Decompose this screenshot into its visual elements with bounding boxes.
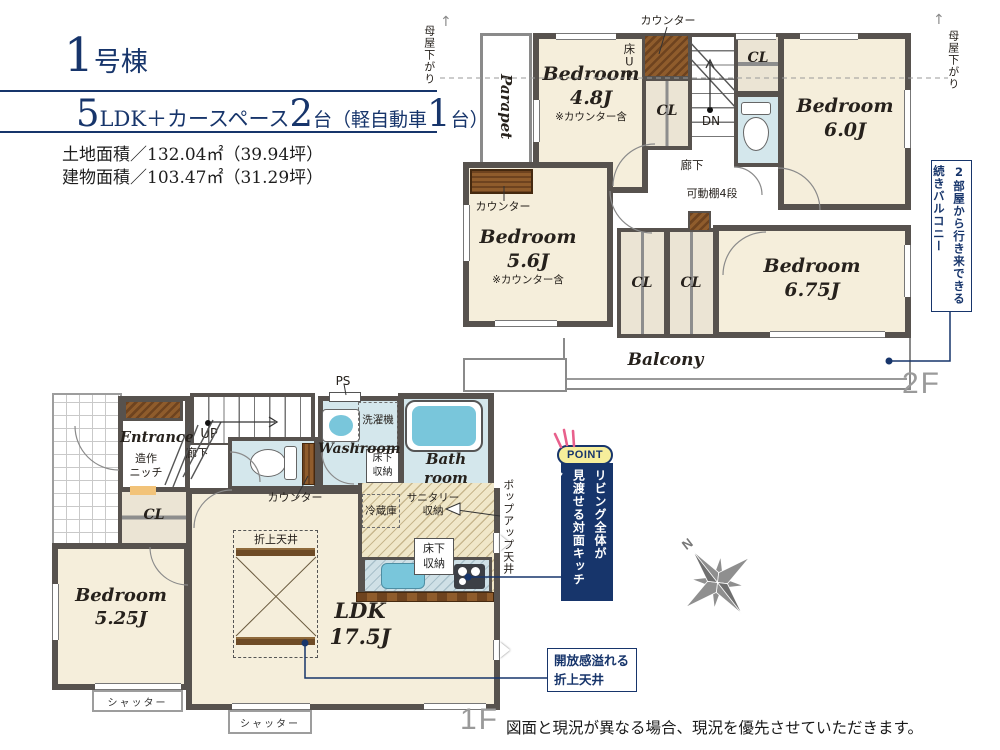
door-opening xyxy=(493,533,500,553)
bedroom-6-0-label: Bedroom 6.0J xyxy=(785,95,905,143)
room-note: ※カウンター含 xyxy=(492,274,564,287)
counter-1f-label: カウンター xyxy=(266,491,324,505)
room-name: Bedroom xyxy=(764,255,861,279)
burner xyxy=(458,567,467,576)
room-size: 5.6J xyxy=(507,250,549,274)
window xyxy=(232,703,310,710)
washroom-label: Washroom xyxy=(318,441,398,459)
land-area: 土地面積／132.04㎡（39.94坪） xyxy=(62,140,323,165)
closet-d-label: CL xyxy=(670,275,712,293)
callout-line: 続きバルコニー xyxy=(929,165,949,307)
niche-line: ニッチ xyxy=(124,466,168,480)
floorplan-page: 1号棟 5LDK＋カースペース2台（軽自動車1台） 土地面積／132.04㎡（3… xyxy=(0,0,1000,750)
door-opening xyxy=(493,640,500,660)
counter-5-6-hatch xyxy=(470,169,533,194)
callout-line: 折上天井 xyxy=(554,671,630,690)
counter-top-label: カウンター xyxy=(638,14,698,28)
washer-label: 洗濯機 xyxy=(359,414,397,427)
burner xyxy=(471,567,480,576)
room-name: Bedroom xyxy=(797,95,894,119)
toilet-tank-1f xyxy=(284,446,297,480)
header-title: 1号棟 xyxy=(64,32,148,79)
hallway-1f-label: 廊下 xyxy=(180,446,214,460)
bathroom-label: Bath room xyxy=(410,450,482,488)
toilet-tank xyxy=(741,102,771,115)
sanitary-line: 収納 xyxy=(400,505,466,518)
popup-ceiling-label: ポップアップ天井 xyxy=(501,477,515,577)
point-badge: POINT xyxy=(557,445,613,465)
shelf-hatch xyxy=(688,211,711,232)
closet-1f-label: CL xyxy=(138,507,170,525)
window xyxy=(904,90,911,148)
door-swing-mark xyxy=(500,642,510,658)
shoe-cabinet-hatch xyxy=(123,399,183,421)
dn-label: DN xyxy=(696,114,726,129)
room-note: ※カウンター含 xyxy=(555,111,627,124)
window xyxy=(52,584,59,640)
shutter-box-1: シャッター xyxy=(92,690,183,712)
ceiling-beam xyxy=(236,548,315,556)
balcony-callout: 2部屋から行き来できる 続きバルコニー xyxy=(931,160,972,312)
building-number: 1 xyxy=(64,28,94,83)
window xyxy=(495,320,557,327)
arrow-up-icon: ↑ xyxy=(440,14,452,30)
kitchen-stove xyxy=(454,564,485,589)
closet-b-label: CL xyxy=(737,50,779,68)
underfloor-line: 床下 xyxy=(415,542,453,557)
building-suffix: 号棟 xyxy=(94,47,148,78)
compass-n-label: N xyxy=(679,535,696,553)
entrance-niche xyxy=(130,486,156,495)
window xyxy=(736,33,776,40)
balcony xyxy=(563,338,911,390)
niche-line: 造作 xyxy=(124,452,168,466)
window xyxy=(556,33,616,40)
kitchen-callout: リビング全体が 見渡せる対面キッチン xyxy=(561,463,613,601)
ps-label: PS xyxy=(329,374,357,389)
entrance-porch xyxy=(52,393,122,560)
toilet-bowl-1f xyxy=(250,449,286,477)
room-size: 6.75J xyxy=(784,279,839,303)
ceiling-beam xyxy=(236,637,315,645)
window xyxy=(800,33,858,40)
ldk-label: LDK 17.5J xyxy=(315,598,405,651)
header-rule-bottom xyxy=(0,131,437,133)
point-badge-text: POINT xyxy=(567,449,603,461)
closet-a-label: CL xyxy=(646,103,688,121)
shelf-label: 可動棚4段 xyxy=(672,187,752,201)
layout-num-2: 2 xyxy=(289,92,313,135)
ps-box xyxy=(329,392,361,402)
washbasin-bowl xyxy=(329,415,353,436)
room-size: 5.25J xyxy=(95,608,147,631)
bedroom-6-75-label: Bedroom 6.75J xyxy=(742,255,882,303)
sanitary-label: サニタリー 収納 xyxy=(400,492,466,518)
room-name: LDK xyxy=(334,598,385,624)
burner xyxy=(459,578,466,585)
room-name: Bedroom xyxy=(480,226,577,250)
balcony-label: Balcony xyxy=(618,350,713,371)
stairs-2f xyxy=(688,33,738,150)
bedroom-5-6-label: Bedroom 5.6J ※カウンター含 xyxy=(467,226,589,287)
underfloor-storage-kitchen: 床下 収納 xyxy=(414,538,454,575)
counter-left-label: カウンター xyxy=(474,200,532,214)
callout-line: 2部屋から行き来できる xyxy=(949,165,969,307)
hallway-2f-label: 廊下 xyxy=(674,158,710,172)
underfloor-line: 収納 xyxy=(367,466,398,480)
dn-dot xyxy=(707,107,713,113)
callout-line: 見渡せる対面キッチン xyxy=(545,469,588,595)
parapet-label: Parapet xyxy=(496,52,515,162)
floor-1f-label: 1F xyxy=(460,703,499,737)
building-area: 建物面積／103.47㎡（31.29坪） xyxy=(62,163,323,188)
sanitary-line: サニタリー xyxy=(400,492,466,505)
balcony-door xyxy=(770,331,885,338)
bathtub-water xyxy=(412,406,476,446)
layout-num-1: 1 xyxy=(427,92,451,135)
fridge-label: 冷蔵庫 xyxy=(363,505,399,518)
floor-2f-label: 2F xyxy=(902,367,941,401)
moya-right-label: 母屋下がり xyxy=(946,22,960,98)
up-dot xyxy=(205,420,211,426)
room-name: Bedroom xyxy=(543,63,640,87)
closet-c-label: CL xyxy=(621,275,663,293)
compass-icon: N xyxy=(665,530,770,635)
bedroom-4-8-label: Bedroom 4.8J ※カウンター含 xyxy=(538,63,644,124)
arrow-up-icon: ↑ xyxy=(933,12,945,28)
layout-text-ldk: LDK＋カースペース xyxy=(100,107,290,131)
room-name: Bath xyxy=(426,450,466,469)
balcony-rail xyxy=(567,378,907,380)
layout-text-kei: 台（軽自動車 xyxy=(313,109,427,131)
disclaimer-text: 図面と現況が異なる場合、現況を優先させていただきます。 xyxy=(506,716,998,738)
niche-label: 造作 ニッチ xyxy=(124,452,168,480)
window xyxy=(904,245,911,297)
room-name: room xyxy=(424,469,468,488)
room-size: 4.8J xyxy=(570,87,612,111)
room-name: Bedroom xyxy=(75,585,167,608)
toilet-counter xyxy=(302,443,315,485)
bedroom-5-25-label: Bedroom 5.25J xyxy=(60,585,182,630)
callout-line: リビング全体が xyxy=(588,469,610,595)
layout-num-5: 5 xyxy=(76,92,100,135)
coffered-label: 折上天井 xyxy=(245,533,307,547)
counter-floor-up-hatch xyxy=(642,33,692,79)
shutter-label: シャッター xyxy=(240,715,300,730)
layout-line: 5LDK＋カースペース2台（軽自動車1台） xyxy=(76,92,446,135)
shutter-label: シャッター xyxy=(108,694,168,709)
callout-line: 開放感溢れる xyxy=(554,652,630,671)
eaves-left xyxy=(463,358,567,392)
moya-left-label: 母屋下がり xyxy=(422,18,436,92)
ceiling-callout: 開放感溢れる 折上天井 xyxy=(547,648,637,692)
room-size: 17.5J xyxy=(329,624,390,650)
up-label: UP xyxy=(193,427,225,443)
shutter-box-2: シャッター xyxy=(228,710,312,734)
underfloor-line: 収納 xyxy=(415,557,453,572)
room-size: 6.0J xyxy=(824,119,866,143)
entrance-label: Entrance xyxy=(120,429,190,447)
window xyxy=(95,683,181,690)
